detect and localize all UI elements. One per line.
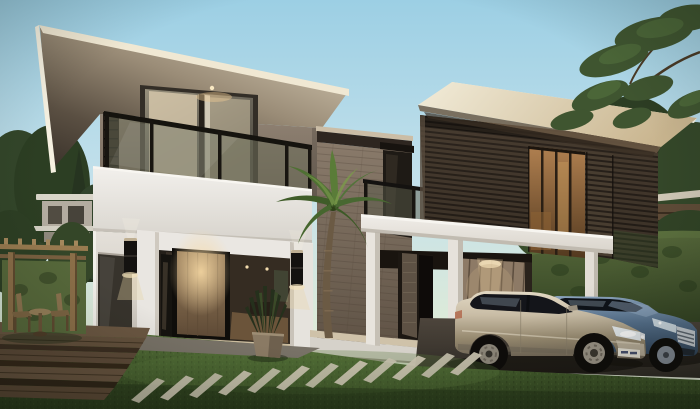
rendered-photo (0, 0, 700, 409)
vignette-overlay (0, 0, 700, 409)
house-exterior-scene (0, 0, 700, 409)
